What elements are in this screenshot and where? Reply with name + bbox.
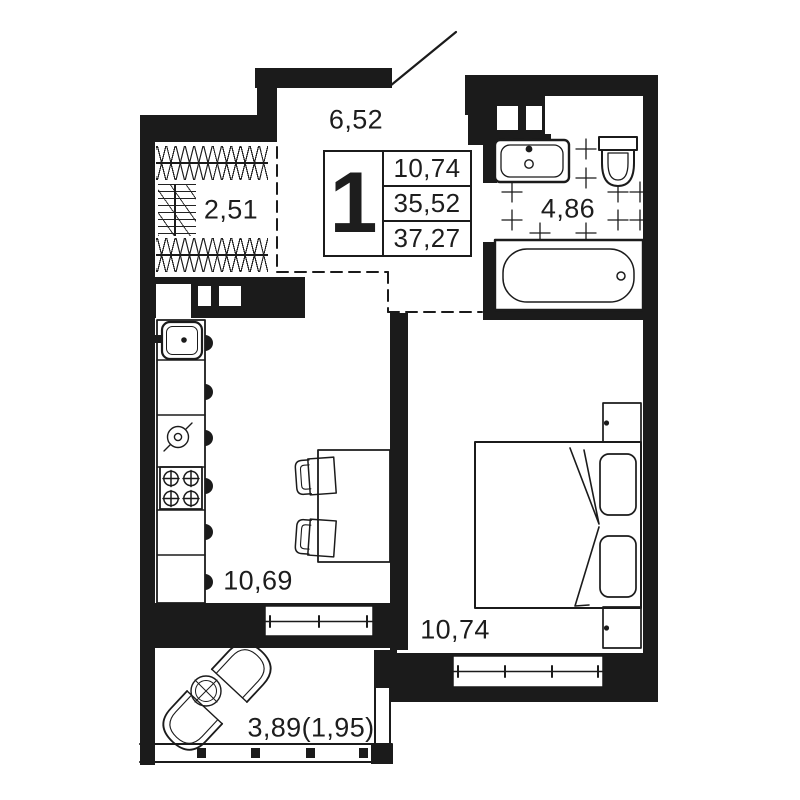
pillow [600,536,636,597]
glazing-post [371,744,393,764]
entrance-door-swing [390,32,456,86]
wardrobe-shelf-hatch [158,184,196,236]
chair [295,457,336,496]
balcony-armchair [155,691,222,758]
wall-segment-left [140,115,155,744]
total-area-value: 37,27 [384,220,470,255]
nightstand [603,607,641,648]
pillow [600,454,636,515]
duct-shaft [156,284,191,318]
wall-bathroom-left-upper [483,95,497,183]
wall-segment [140,115,262,142]
wardrobe-rail-hatch-top [156,146,268,180]
nightstand [603,403,641,442]
cabinet-handles [205,335,213,590]
kitchen-counter [157,320,213,603]
floor-plan: 6,52 2,51 4,86 10,69 10,74 3,89(1,95) 1 … [0,0,800,800]
living-area-value: 10,74 [384,152,470,185]
hallway-area-label: 6,52 [329,105,383,136]
duct-shaft [219,286,241,306]
duct-shaft [526,106,542,130]
blanket-fold [570,448,599,606]
kitchen-sink [147,322,202,359]
unit-info-box: 1 10,74 35,52 37,27 [323,150,472,257]
wall-segment-right [643,75,658,702]
dining-table [318,450,390,562]
toilet [599,137,637,186]
kitchen-area-label: 10,69 [223,566,293,597]
extractor-fan [164,423,192,451]
wall-bathroom-left-lower [483,242,497,308]
wall-bedroom-bottom [390,653,658,702]
bedroom-area-label: 10,74 [420,615,490,646]
wall-kitchen-bottom [140,603,408,648]
area-without-balcony: 35,52 [384,185,470,220]
chair [295,518,336,557]
glazing-post [140,742,155,765]
bed [475,442,641,608]
balcony-area-label: 3,89(1,95) [247,713,374,744]
duct-shaft [198,286,211,306]
wall-kitchen-bedroom [390,313,408,650]
rooms-count: 1 [325,152,384,255]
bathtub [495,240,643,310]
balcony-table [191,676,221,706]
bathroom-area-label: 4,86 [541,194,595,225]
stove [160,467,202,509]
wall-bathroom-bottom [483,303,658,320]
bathroom-tile-grid [502,139,650,243]
wardrobe-area-label: 2,51 [204,195,258,226]
glazing-posts [144,748,368,758]
wardrobe-rail-hatch-bottom [156,238,268,272]
